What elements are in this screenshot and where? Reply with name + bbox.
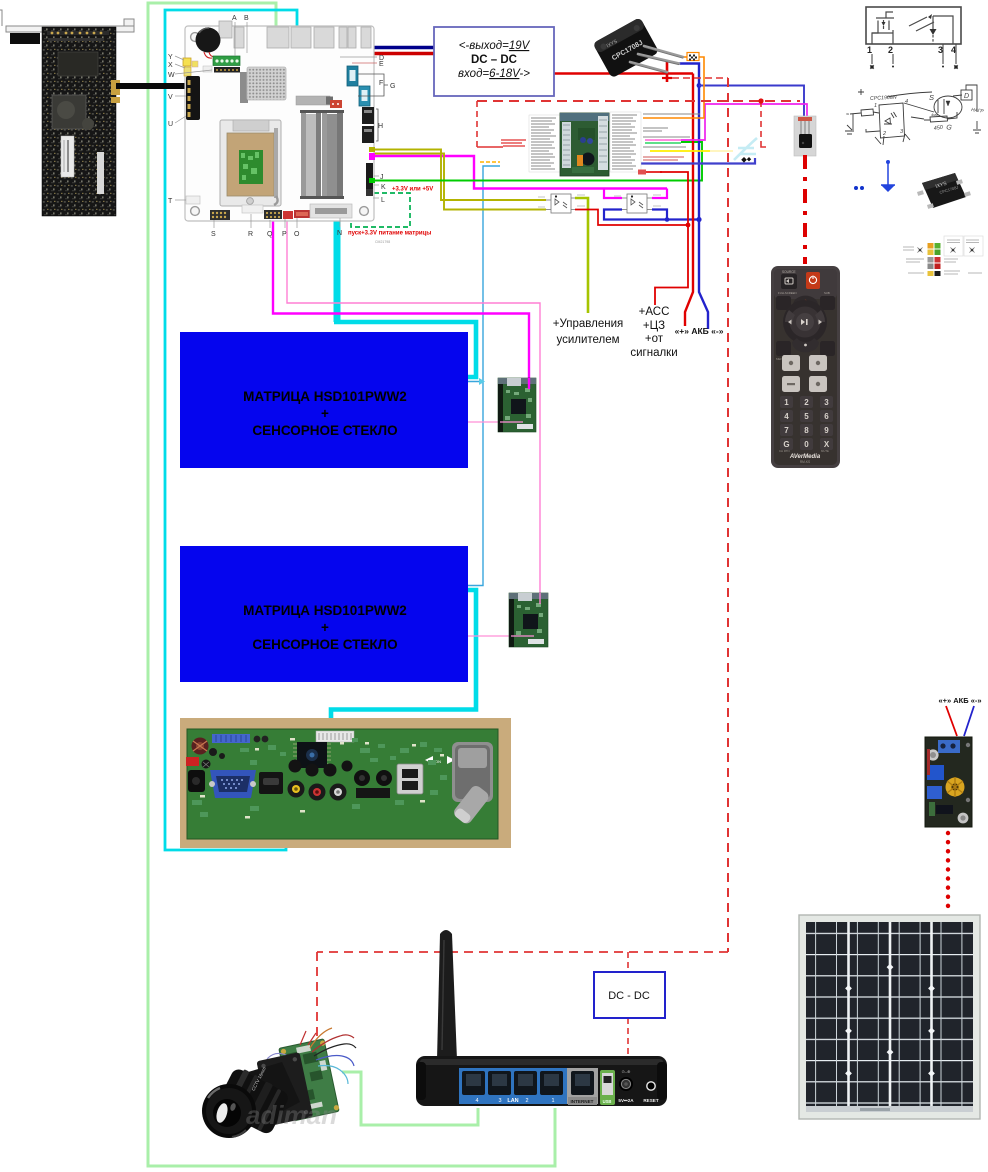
svg-text:пуск+3.3V питание матрицы: пуск+3.3V питание матрицы	[348, 231, 431, 237]
svg-text:1: 1	[551, 1098, 554, 1104]
svg-text:adiman: adiman	[246, 1100, 337, 1130]
svg-text:MUTE: MUTE	[821, 449, 829, 453]
svg-text:RESET: RESET	[643, 1098, 659, 1103]
svg-text:4: 4	[784, 412, 789, 421]
svg-text:3: 3	[938, 45, 943, 55]
svg-text:⊙–⊕: ⊙–⊕	[622, 1069, 631, 1074]
svg-text:1: 1	[867, 45, 872, 55]
svg-text:G: G	[390, 83, 395, 90]
svg-text:6: 6	[824, 412, 829, 421]
svg-text:+от: +от	[645, 333, 664, 345]
svg-text:+: +	[321, 406, 329, 421]
svg-text:усилителем: усилителем	[556, 334, 619, 346]
svg-text:Q: Q	[267, 231, 273, 238]
svg-text:+ЦЗ: +ЦЗ	[643, 320, 665, 332]
svg-text:S: S	[211, 231, 216, 238]
svg-text:SOURCE: SOURCE	[782, 270, 796, 274]
svg-text:FULLSCREEN: FULLSCREEN	[778, 291, 797, 295]
svg-text:T: T	[168, 198, 173, 205]
svg-text:8: 8	[804, 426, 809, 435]
svg-text:N: N	[337, 230, 342, 237]
svg-text:DC – DC: DC – DC	[471, 54, 517, 66]
svg-text:X: X	[824, 440, 830, 449]
svg-text:X: X	[168, 62, 173, 69]
svg-text:Y: Y	[168, 54, 173, 61]
svg-text:+АСС: +АСС	[639, 306, 670, 318]
svg-text:U: U	[168, 121, 173, 128]
svg-text:3: 3	[498, 1098, 501, 1104]
svg-text:J: J	[380, 174, 384, 181]
svg-text:R: R	[248, 231, 253, 238]
svg-text:МАТРИЦА HSD101PWW2: МАТРИЦА HSD101PWW2	[243, 603, 407, 618]
svg-text:≈: ≈	[846, 112, 849, 118]
svg-text:5: 5	[804, 412, 809, 421]
svg-text:W: W	[168, 72, 175, 79]
svg-text:<-выход=19V: <-выход=19V	[459, 40, 531, 52]
svg-text:+Управления: +Управления	[553, 318, 623, 330]
svg-text:СЕНСОРНОЕ СТЕКЛО: СЕНСОРНОЕ СТЕКЛО	[252, 423, 397, 438]
svg-text:+: +	[321, 620, 329, 635]
svg-text:USB: USB	[603, 1099, 612, 1104]
svg-text:3: 3	[824, 398, 829, 407]
svg-text:«+» АКБ «-»: «+» АКБ «-»	[938, 696, 981, 705]
svg-text:V: V	[168, 94, 173, 101]
svg-text:S: S	[929, 93, 934, 102]
svg-text:B: B	[244, 15, 249, 22]
svg-text:МАТРИЦА HSD101PWW2: МАТРИЦА HSD101PWW2	[243, 389, 407, 404]
svg-text:G: G	[783, 440, 789, 449]
svg-text:P: P	[282, 231, 287, 238]
svg-text:«+» АКБ «-»: «+» АКБ «-»	[675, 326, 724, 336]
svg-text:5V⎓2A: 5V⎓2A	[618, 1098, 634, 1103]
svg-text:СЕНСОРНОЕ СТЕКЛО: СЕНСОРНОЕ СТЕКЛО	[252, 637, 397, 652]
svg-text:D: D	[964, 93, 969, 100]
svg-text:RM-KS: RM-KS	[800, 460, 810, 464]
svg-text:A: A	[232, 15, 237, 22]
svg-text:L: L	[381, 197, 385, 204]
svg-text:4: 4	[475, 1098, 478, 1104]
svg-text:K: K	[381, 184, 386, 191]
svg-text:7: 7	[784, 426, 789, 435]
svg-text:INTERNET: INTERNET	[571, 1099, 594, 1104]
svg-text:O: O	[294, 231, 300, 238]
svg-text:CH RTN: CH RTN	[779, 449, 790, 453]
svg-text:4: 4	[951, 45, 956, 55]
svg-text:4: 4	[905, 99, 908, 105]
svg-text:2: 2	[882, 131, 886, 137]
svg-text:LAN: LAN	[507, 1098, 518, 1104]
svg-text:2: 2	[525, 1098, 528, 1104]
svg-text:4мв: 4мв	[931, 112, 938, 117]
svg-text:2: 2	[888, 45, 893, 55]
svg-text:сигналки: сигналки	[630, 347, 677, 359]
svg-text:CM21798: CM21798	[375, 240, 390, 244]
svg-text:+3.3V или +5V: +3.3V или +5V	[392, 187, 433, 193]
svg-text:2: 2	[804, 398, 809, 407]
svg-text:1: 1	[874, 103, 877, 109]
svg-text:SUB: SUB	[824, 291, 830, 295]
svg-text:вход=6-18V->: вход=6-18V->	[458, 68, 530, 80]
svg-text:F: F	[379, 80, 383, 87]
svg-text:0: 0	[804, 440, 809, 449]
svg-text:H: H	[378, 123, 383, 130]
svg-text:DC - DC: DC - DC	[608, 990, 650, 1002]
svg-text:E: E	[379, 61, 384, 68]
svg-text:1: 1	[784, 398, 789, 407]
svg-text:9: 9	[824, 426, 829, 435]
